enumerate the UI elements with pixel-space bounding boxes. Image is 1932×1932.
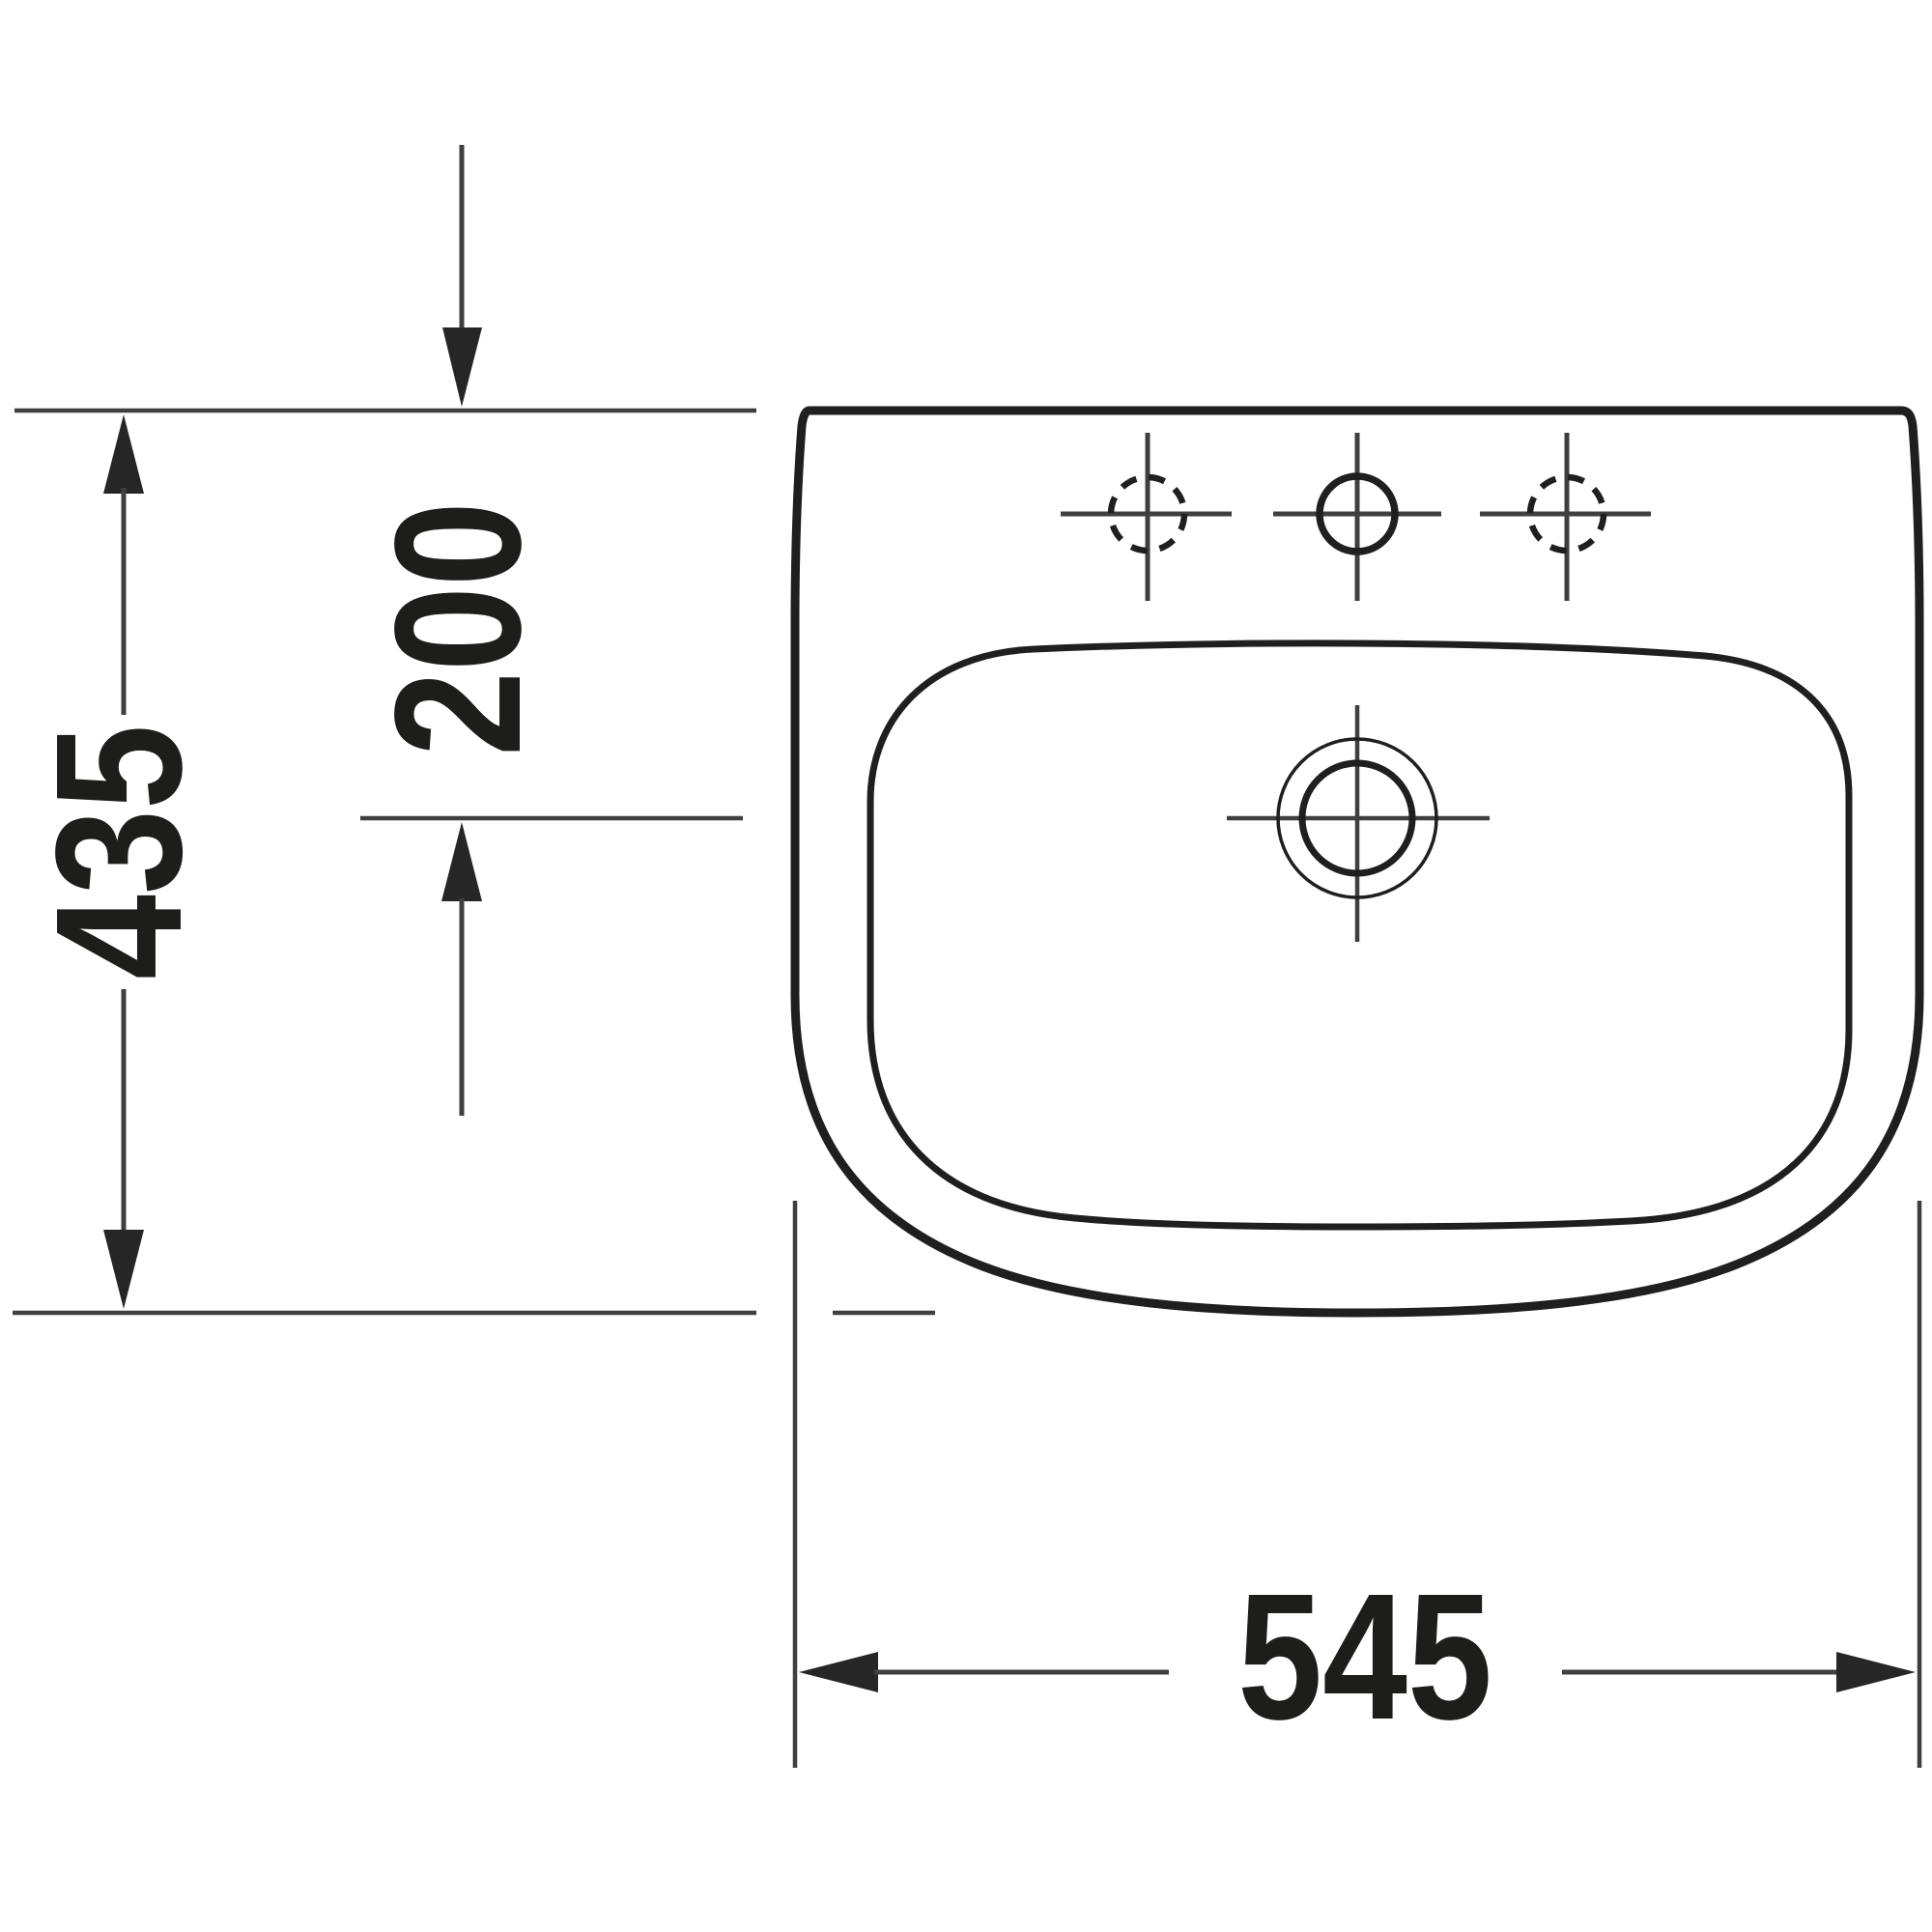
rear-to-drain-dimension-label: 200 bbox=[357, 501, 558, 756]
faucet-hole-left bbox=[1061, 433, 1232, 601]
dimension-width: 545 bbox=[795, 1201, 1919, 1768]
rear-to-drain-arrow-up bbox=[441, 822, 482, 901]
faucet-hole-right bbox=[1480, 433, 1651, 601]
washbasin-drawing-canvas: 435 200 545 bbox=[0, 0, 1932, 1932]
rear-to-drain-arrow-down bbox=[442, 327, 482, 407]
depth-dimension-label: 435 bbox=[18, 724, 219, 980]
basin-inner-outline bbox=[870, 643, 1849, 1227]
basin-inner-edge bbox=[870, 643, 1849, 1227]
faucet-hole-center bbox=[1273, 433, 1441, 601]
dimension-rear-to-drain: 200 bbox=[357, 145, 743, 1116]
width-arrow-left bbox=[799, 1652, 878, 1692]
depth-arrow-up bbox=[103, 414, 144, 494]
drain-overflow bbox=[1227, 705, 1490, 942]
width-arrow-right bbox=[1836, 1652, 1916, 1692]
depth-arrow-down bbox=[103, 1230, 144, 1309]
technical-drawing: 435 200 545 bbox=[0, 0, 1932, 1932]
width-dimension-label: 545 bbox=[1237, 1556, 1492, 1757]
faucet-holes bbox=[1061, 433, 1651, 601]
